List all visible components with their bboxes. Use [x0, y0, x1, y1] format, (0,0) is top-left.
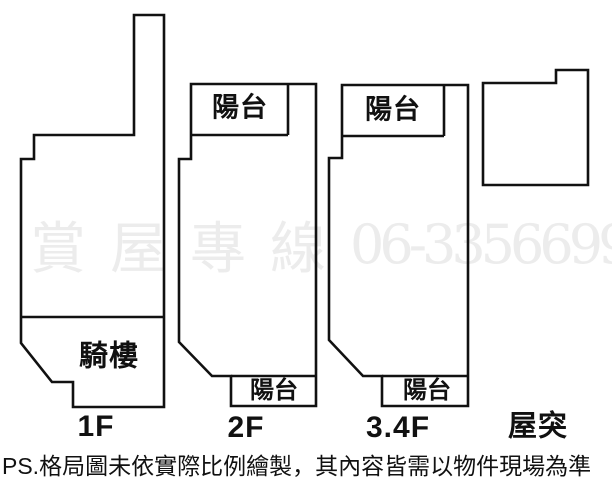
floor-2f-outline: [179, 84, 316, 406]
disclaimer-note: PS.格局圖未依實際比例繪製，其內容皆需以物件現場為準: [2, 447, 591, 479]
balcony-label-2f-top: 陽台: [212, 95, 268, 122]
floor-plan-drawing: [0, 0, 612, 479]
floor-label-3f: 3.4F: [366, 413, 430, 443]
floor-label-roof-protrusion: 屋突: [508, 413, 568, 442]
floor-label-1f: 1F: [77, 412, 114, 442]
floor-3f-outline: [329, 85, 468, 406]
balcony-label-2f-bottom: 陽台: [250, 379, 298, 403]
floor-label-2f: 2F: [227, 413, 264, 443]
balcony-label-3f-bottom: 陽台: [403, 379, 451, 403]
roof-protrusion-outline: [483, 70, 588, 185]
floor-plan-canvas: 賞屋專線 06-3356699 陽台 陽台 陽台 陽台 騎樓 1F 2F 3.4…: [0, 0, 612, 479]
balcony-label-3f-top: 陽台: [365, 97, 421, 124]
arcade-label-1f: 騎樓: [79, 343, 139, 372]
